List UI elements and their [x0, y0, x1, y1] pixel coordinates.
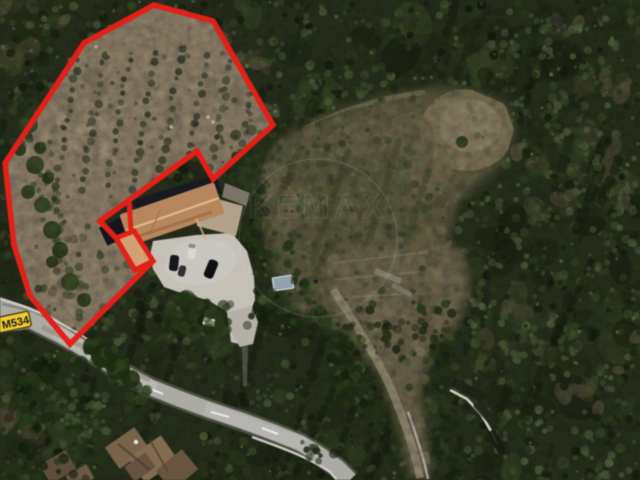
svg-text:KEMAX: KEMAX — [248, 188, 387, 225]
